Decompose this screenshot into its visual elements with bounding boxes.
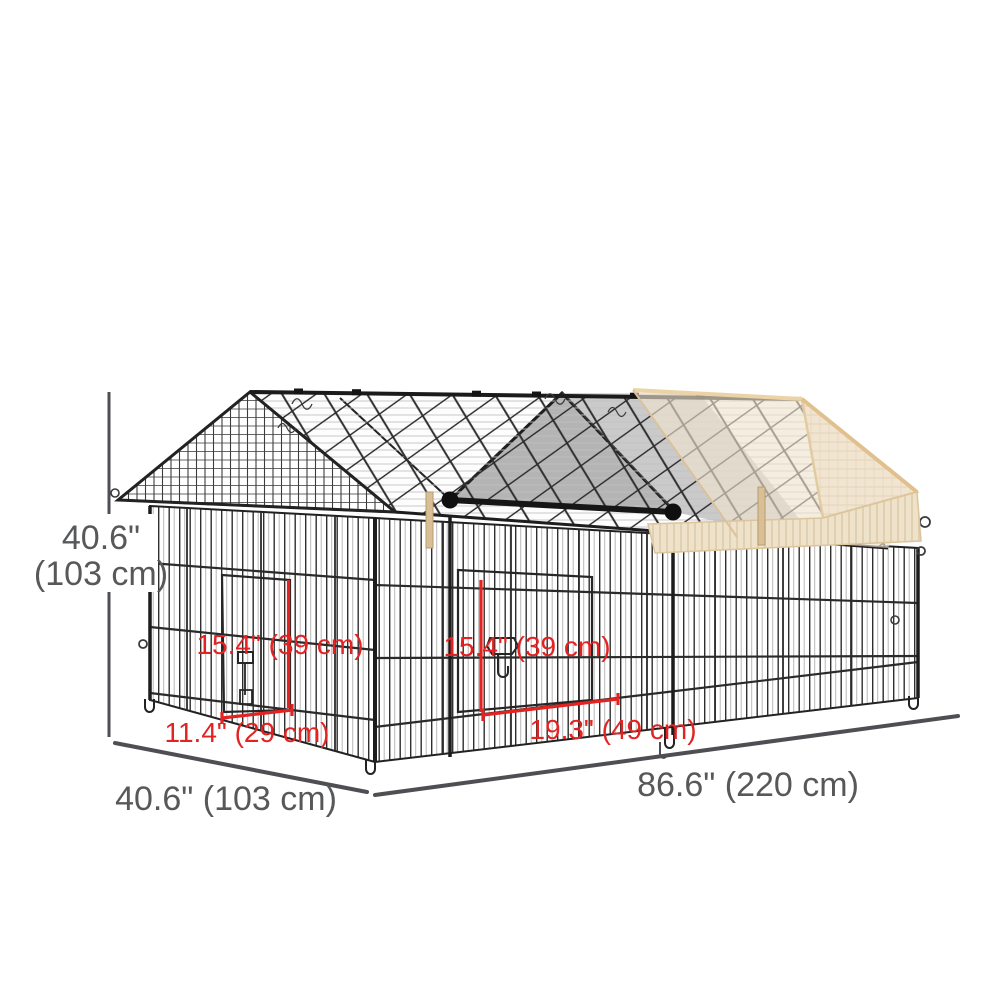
side-door-width-label: 11.4" (29 cm) bbox=[164, 717, 329, 748]
cover-pole bbox=[758, 487, 765, 545]
corner-ball-joint bbox=[665, 504, 682, 521]
enclosure-diagram-svg: PawHut bbox=[0, 0, 1000, 1000]
front-door-width-label: 19.3" (49 cm) bbox=[529, 714, 696, 745]
side-door-height-label: 15.4" (39 cm) bbox=[196, 629, 363, 660]
cover-pole bbox=[426, 492, 433, 548]
corner-ball-joint bbox=[442, 492, 459, 509]
front-door-height-label: 15.4" (39 cm) bbox=[443, 631, 610, 662]
depth-label: 40.6" (103 cm) bbox=[115, 780, 337, 818]
height-label-inches: 40.6" bbox=[62, 519, 140, 557]
product-dimension-diagram: PawHut bbox=[0, 0, 1000, 1000]
height-label-cm: (103 cm) bbox=[34, 555, 168, 593]
length-label: 86.6" (220 cm) bbox=[637, 766, 859, 804]
